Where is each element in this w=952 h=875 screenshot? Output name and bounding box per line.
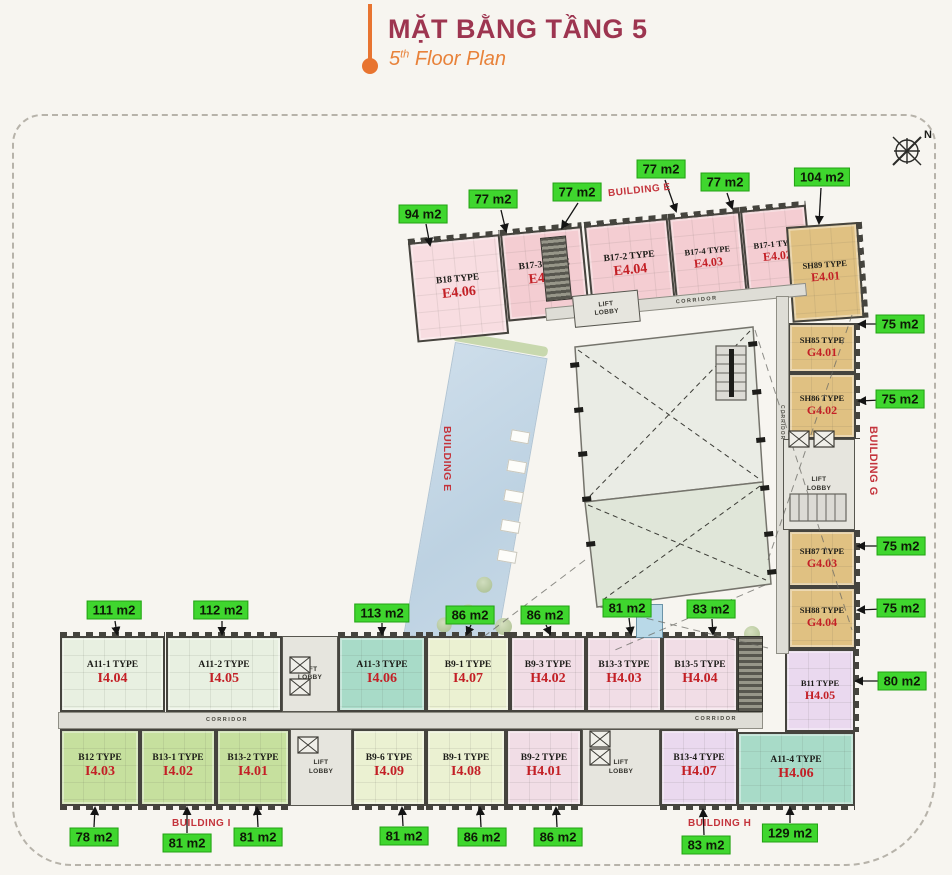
unit-type-label: SH85 TYPE (800, 336, 844, 345)
unit-type-label: B9-6 TYPE (366, 754, 413, 764)
unit-type-label: B11 TYPE (801, 679, 839, 688)
unit-H4.05[interactable]: B11 TYPEH4.05 (785, 649, 855, 732)
area-badge-E4.03: 77 m2 (637, 160, 686, 179)
unit-G4.04[interactable]: SH88 TYPEG4.04 (788, 587, 856, 649)
building-g-label: BUILDING G (867, 426, 879, 496)
unit-I4.08[interactable]: B9-1 TYPEI4.08 (426, 729, 506, 806)
unit-H4.01[interactable]: B9-2 TYPEH4.01 (506, 729, 582, 806)
floor-plan-canvas: MẶT BẰNG TẦNG 5 5th Floor Plan N (0, 0, 952, 875)
unit-code-label: I4.03 (85, 764, 115, 781)
lounge-chair (506, 459, 527, 474)
unit-E4.04[interactable]: B17-2 TYPEE4.04 (584, 218, 676, 314)
unit-code-label: E4.03 (693, 254, 723, 271)
unit-I4.02[interactable]: B13-1 TYPEI4.02 (140, 729, 216, 806)
unit-code-label: G4.01 (807, 345, 837, 359)
unit-I4.06[interactable]: A11-3 TYPEI4.06 (338, 636, 426, 712)
area-badge-I4.02: 81 m2 (163, 834, 212, 853)
unit-E4.03[interactable]: B17-4 TYPEE4.03 (668, 211, 748, 305)
unit-code-label: H4.03 (606, 671, 641, 688)
area-badge-G4.01: 75 m2 (876, 315, 925, 334)
lounge-chair (510, 429, 531, 444)
area-badge-H4.07: 83 m2 (682, 836, 731, 855)
unit-type-label: SH86 TYPE (800, 394, 844, 403)
unit-H4.04[interactable]: B13-5 TYPEH4.04 (662, 636, 738, 712)
unit-E4.06[interactable]: B18 TYPEE4.06 (408, 234, 509, 342)
unit-type-label: A11-4 TYPE (770, 756, 821, 766)
unit-E4.01[interactable]: SH89 TYPEE4.01 (786, 222, 865, 323)
tree (475, 576, 494, 595)
unit-G4.01[interactable]: SH85 TYPEG4.01 (788, 323, 856, 373)
unit-code-label: H4.05 (805, 688, 835, 702)
unit-type-label: SH87 TYPE (800, 547, 844, 556)
area-badge-I4.01: 81 m2 (234, 828, 283, 847)
unit-code-label: I4.02 (163, 764, 193, 781)
unit-I4.04[interactable]: A11-1 TYPEI4.04 (60, 636, 165, 712)
unit-type-label: B13-2 TYPE (227, 754, 278, 764)
area-badge-H4.03: 81 m2 (603, 599, 652, 618)
unit-type-label: A11-1 TYPE (87, 661, 138, 671)
unit-code-label: I4.04 (98, 671, 128, 688)
area-badge-E4.01: 104 m2 (794, 168, 850, 187)
unit-type-label: B13-5 TYPE (674, 661, 725, 671)
page-subtitle: 5th Floor Plan (389, 48, 506, 71)
title-accent-dot (362, 58, 378, 74)
unit-type-label: A11-3 TYPE (356, 661, 407, 671)
area-badge-I4.09: 81 m2 (380, 827, 429, 846)
area-badge-I4.03: 78 m2 (70, 828, 119, 847)
unit-code-label: H4.02 (530, 671, 565, 688)
unit-code-label: E4.04 (613, 261, 648, 281)
area-badge-H4.04: 83 m2 (687, 600, 736, 619)
unit-code-label: H4.01 (526, 764, 561, 781)
area-badge-E4.02: 77 m2 (701, 173, 750, 192)
lounge-chair (503, 489, 524, 504)
unit-type-label: SH88 TYPE (800, 606, 844, 615)
unit-code-label: I4.01 (238, 764, 268, 781)
area-badge-E4.04: 77 m2 (553, 183, 602, 202)
unit-code-label: H4.04 (682, 671, 717, 688)
title-accent-line (368, 4, 372, 60)
unit-I4.03[interactable]: B12 TYPEI4.03 (60, 729, 140, 806)
tree (744, 626, 760, 642)
area-badge-I4.06: 113 m2 (354, 604, 409, 623)
unit-code-label: E4.05 (528, 269, 563, 289)
unit-code-label: G4.03 (807, 556, 837, 570)
building-e-pool-label: BUILDING E (441, 426, 453, 492)
area-badge-I4.05: 112 m2 (193, 601, 248, 620)
area-badge-I4.07: 86 m2 (446, 606, 495, 625)
unit-code-label: E4.01 (811, 269, 841, 285)
unit-I4.09[interactable]: B9-6 TYPEI4.09 (352, 729, 426, 806)
area-badge-H4.01: 86 m2 (534, 828, 583, 847)
unit-H4.06[interactable]: A11-4 TYPEH4.06 (737, 732, 855, 806)
unit-code-label: I4.08 (451, 764, 481, 781)
unit-code-label: H4.06 (778, 766, 813, 783)
unit-I4.07[interactable]: B9-1 TYPEI4.07 (426, 636, 510, 712)
area-badge-H4.05: 80 m2 (878, 672, 927, 691)
lounge-chair (500, 519, 521, 534)
unit-code-label: I4.05 (209, 671, 239, 688)
unit-code-label: G4.04 (807, 615, 837, 629)
unit-type-label: B13-3 TYPE (598, 661, 649, 671)
unit-type-label: B13-1 TYPE (152, 754, 203, 764)
unit-code-label: E4.06 (441, 283, 476, 303)
unit-code-label: I4.06 (367, 671, 397, 688)
lounge-chair (497, 549, 518, 564)
unit-I4.05[interactable]: A11-2 TYPEI4.05 (166, 636, 282, 712)
compass-north-label: N (924, 129, 932, 141)
area-badge-G4.03: 75 m2 (877, 537, 926, 556)
unit-type-label: B9-1 TYPE (443, 754, 490, 764)
unit-I4.01[interactable]: B13-2 TYPEI4.01 (216, 729, 290, 806)
unit-code-label: H4.07 (681, 764, 716, 781)
unit-E4.05[interactable]: B17-3 TYPEE4.05 (500, 226, 590, 321)
area-badge-G4.02: 75 m2 (876, 390, 925, 409)
unit-code-label: I4.09 (374, 764, 404, 781)
compass-icon: N (884, 124, 940, 174)
unit-code-label: G4.02 (807, 403, 837, 417)
area-badge-E4.06: 94 m2 (399, 205, 448, 224)
area-badge-H4.02: 86 m2 (521, 606, 570, 625)
building-h-label: BUILDING H (688, 818, 751, 829)
area-badge-I4.04: 111 m2 (87, 601, 142, 620)
unit-type-label: B9-2 TYPE (521, 754, 568, 764)
area-badge-I4.08: 86 m2 (458, 828, 507, 847)
unit-H4.02[interactable]: B9-3 TYPEH4.02 (510, 636, 586, 712)
unit-type-label: B13-4 TYPE (673, 754, 724, 764)
area-badge-G4.04: 75 m2 (877, 599, 926, 618)
unit-H4.03[interactable]: B13-3 TYPEH4.03 (586, 636, 662, 712)
title-block: MẶT BẰNG TẦNG 5 5th Floor Plan (352, 4, 672, 82)
area-badge-E4.05: 77 m2 (469, 190, 518, 209)
area-badge-H4.06: 129 m2 (762, 824, 818, 843)
unit-type-label: A11-2 TYPE (198, 661, 249, 671)
unit-G4.02[interactable]: SH86 TYPEG4.02 (788, 373, 856, 439)
unit-type-label: B9-1 TYPE (445, 661, 492, 671)
unit-H4.07[interactable]: B13-4 TYPEH4.07 (660, 729, 738, 806)
unit-G4.03[interactable]: SH87 TYPEG4.03 (788, 530, 856, 587)
unit-type-label: B9-3 TYPE (525, 661, 572, 671)
unit-type-label: B12 TYPE (78, 754, 121, 764)
building-i-label: BUILDING I (172, 818, 231, 829)
unit-code-label: I4.07 (453, 671, 483, 688)
page-title: MẶT BẰNG TẦNG 5 (388, 14, 648, 45)
